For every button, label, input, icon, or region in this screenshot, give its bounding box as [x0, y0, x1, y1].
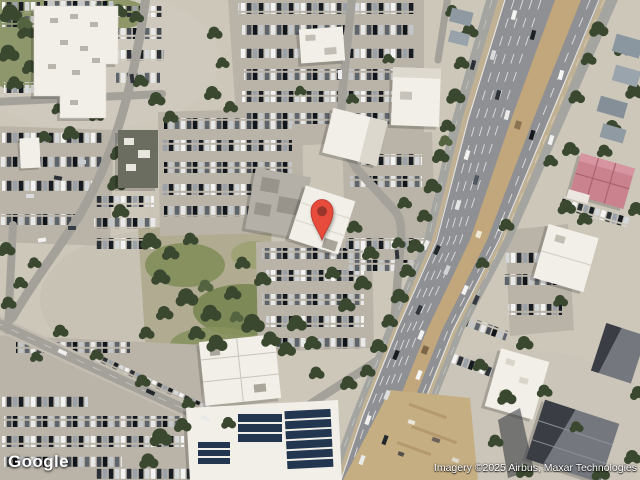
satellite-map[interactable]: Google Imagery ©2025 Airbus, Maxar Techn… — [0, 0, 640, 480]
map-attribution: Imagery ©2025 Airbus, Maxar Technologies — [434, 462, 637, 474]
building-solar-roof — [183, 400, 342, 480]
building-dark-left — [115, 130, 158, 191]
building-white-topright — [388, 67, 441, 130]
building-white-topcenter — [296, 27, 345, 67]
building-small-white-left — [17, 137, 41, 170]
google-logo[interactable]: Google — [8, 452, 69, 472]
location-pin-icon[interactable] — [307, 196, 337, 241]
